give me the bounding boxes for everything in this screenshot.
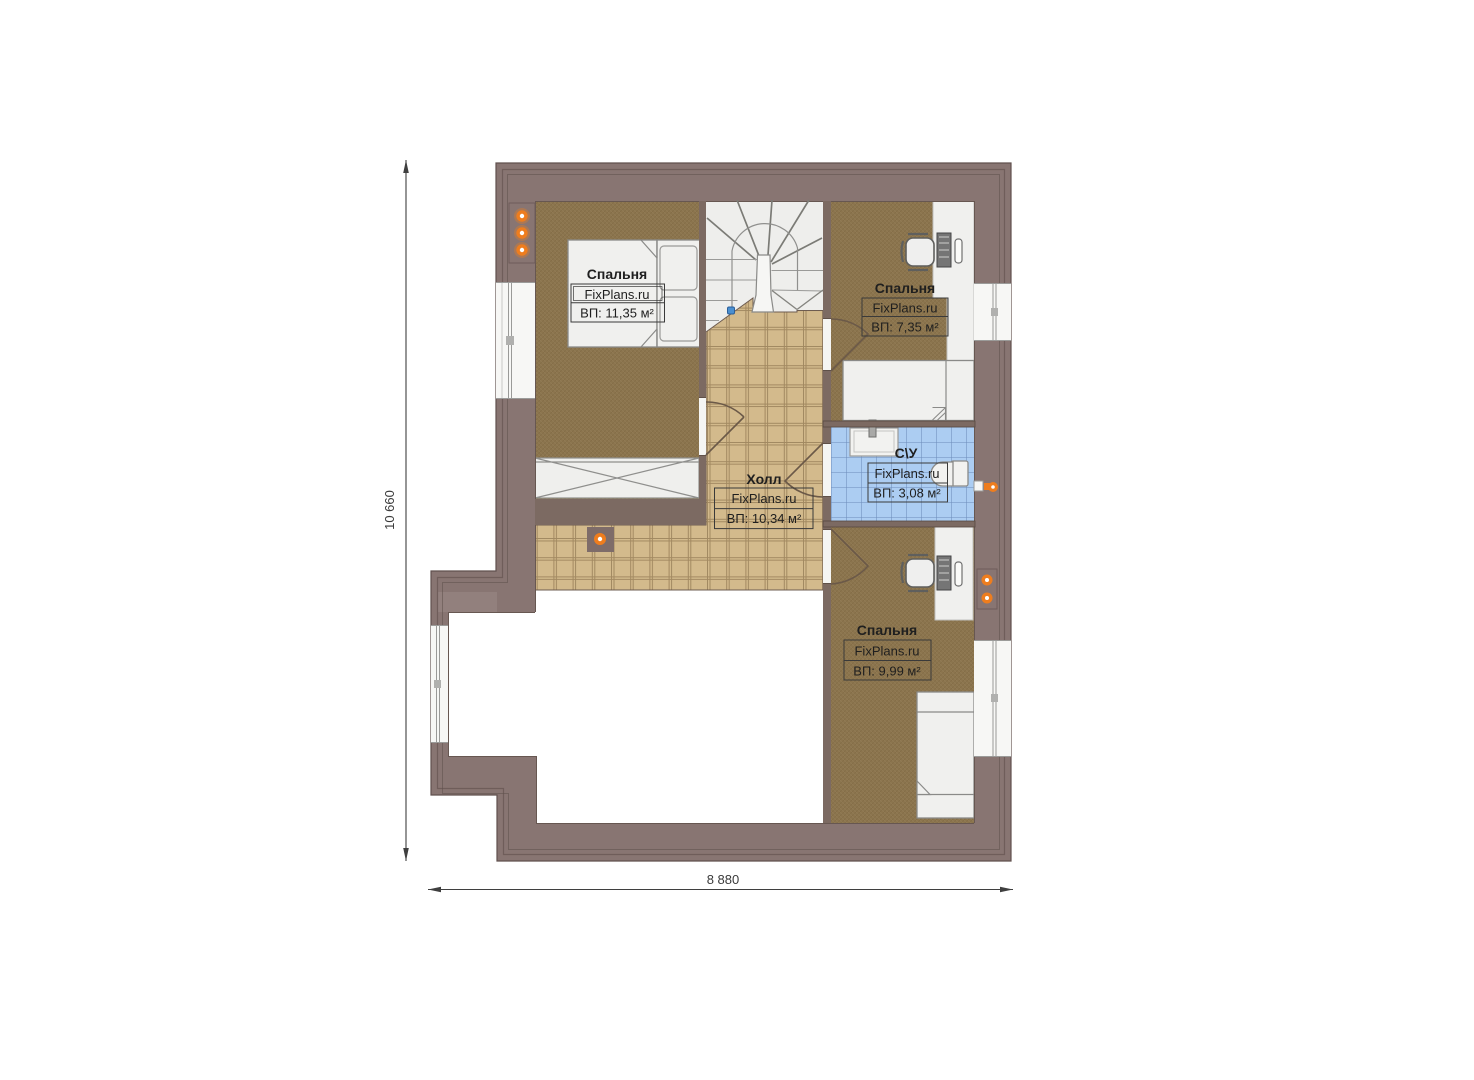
svg-text:ВП: 7,35 м²: ВП: 7,35 м² — [871, 320, 939, 335]
svg-text:10 660: 10 660 — [382, 490, 397, 530]
svg-text:ВП: 10,34 м²: ВП: 10,34 м² — [727, 511, 802, 526]
svg-text:Спальня: Спальня — [857, 622, 917, 638]
svg-text:С\У: С\У — [895, 445, 918, 461]
svg-text:FixPlans.ru: FixPlans.ru — [872, 301, 937, 316]
svg-text:Холл: Холл — [746, 471, 781, 487]
svg-text:Спальня: Спальня — [587, 266, 647, 282]
svg-text:Спальня: Спальня — [875, 280, 935, 296]
svg-text:FixPlans.ru: FixPlans.ru — [854, 644, 919, 659]
svg-text:ВП: 9,99 м²: ВП: 9,99 м² — [853, 664, 921, 679]
svg-text:FixPlans.ru: FixPlans.ru — [584, 287, 649, 302]
svg-text:8 880: 8 880 — [707, 872, 740, 887]
svg-text:FixPlans.ru: FixPlans.ru — [874, 466, 939, 481]
svg-text:FixPlans.ru: FixPlans.ru — [731, 491, 796, 506]
svg-text:ВП: 3,08 м²: ВП: 3,08 м² — [873, 486, 941, 501]
svg-text:ВП: 11,35 м²: ВП: 11,35 м² — [580, 306, 654, 321]
